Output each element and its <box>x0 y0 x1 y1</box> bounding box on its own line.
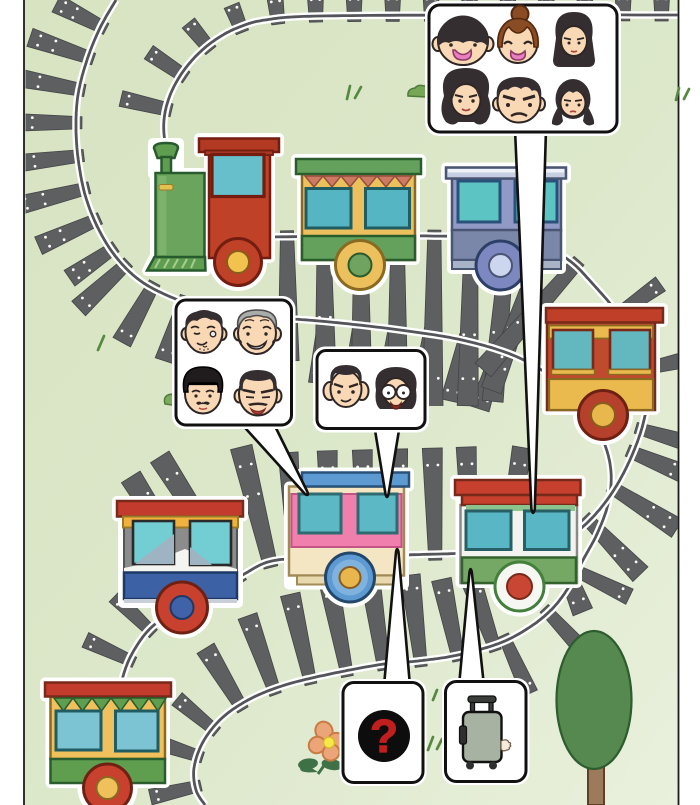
svg-text:?: ? <box>370 710 398 762</box>
